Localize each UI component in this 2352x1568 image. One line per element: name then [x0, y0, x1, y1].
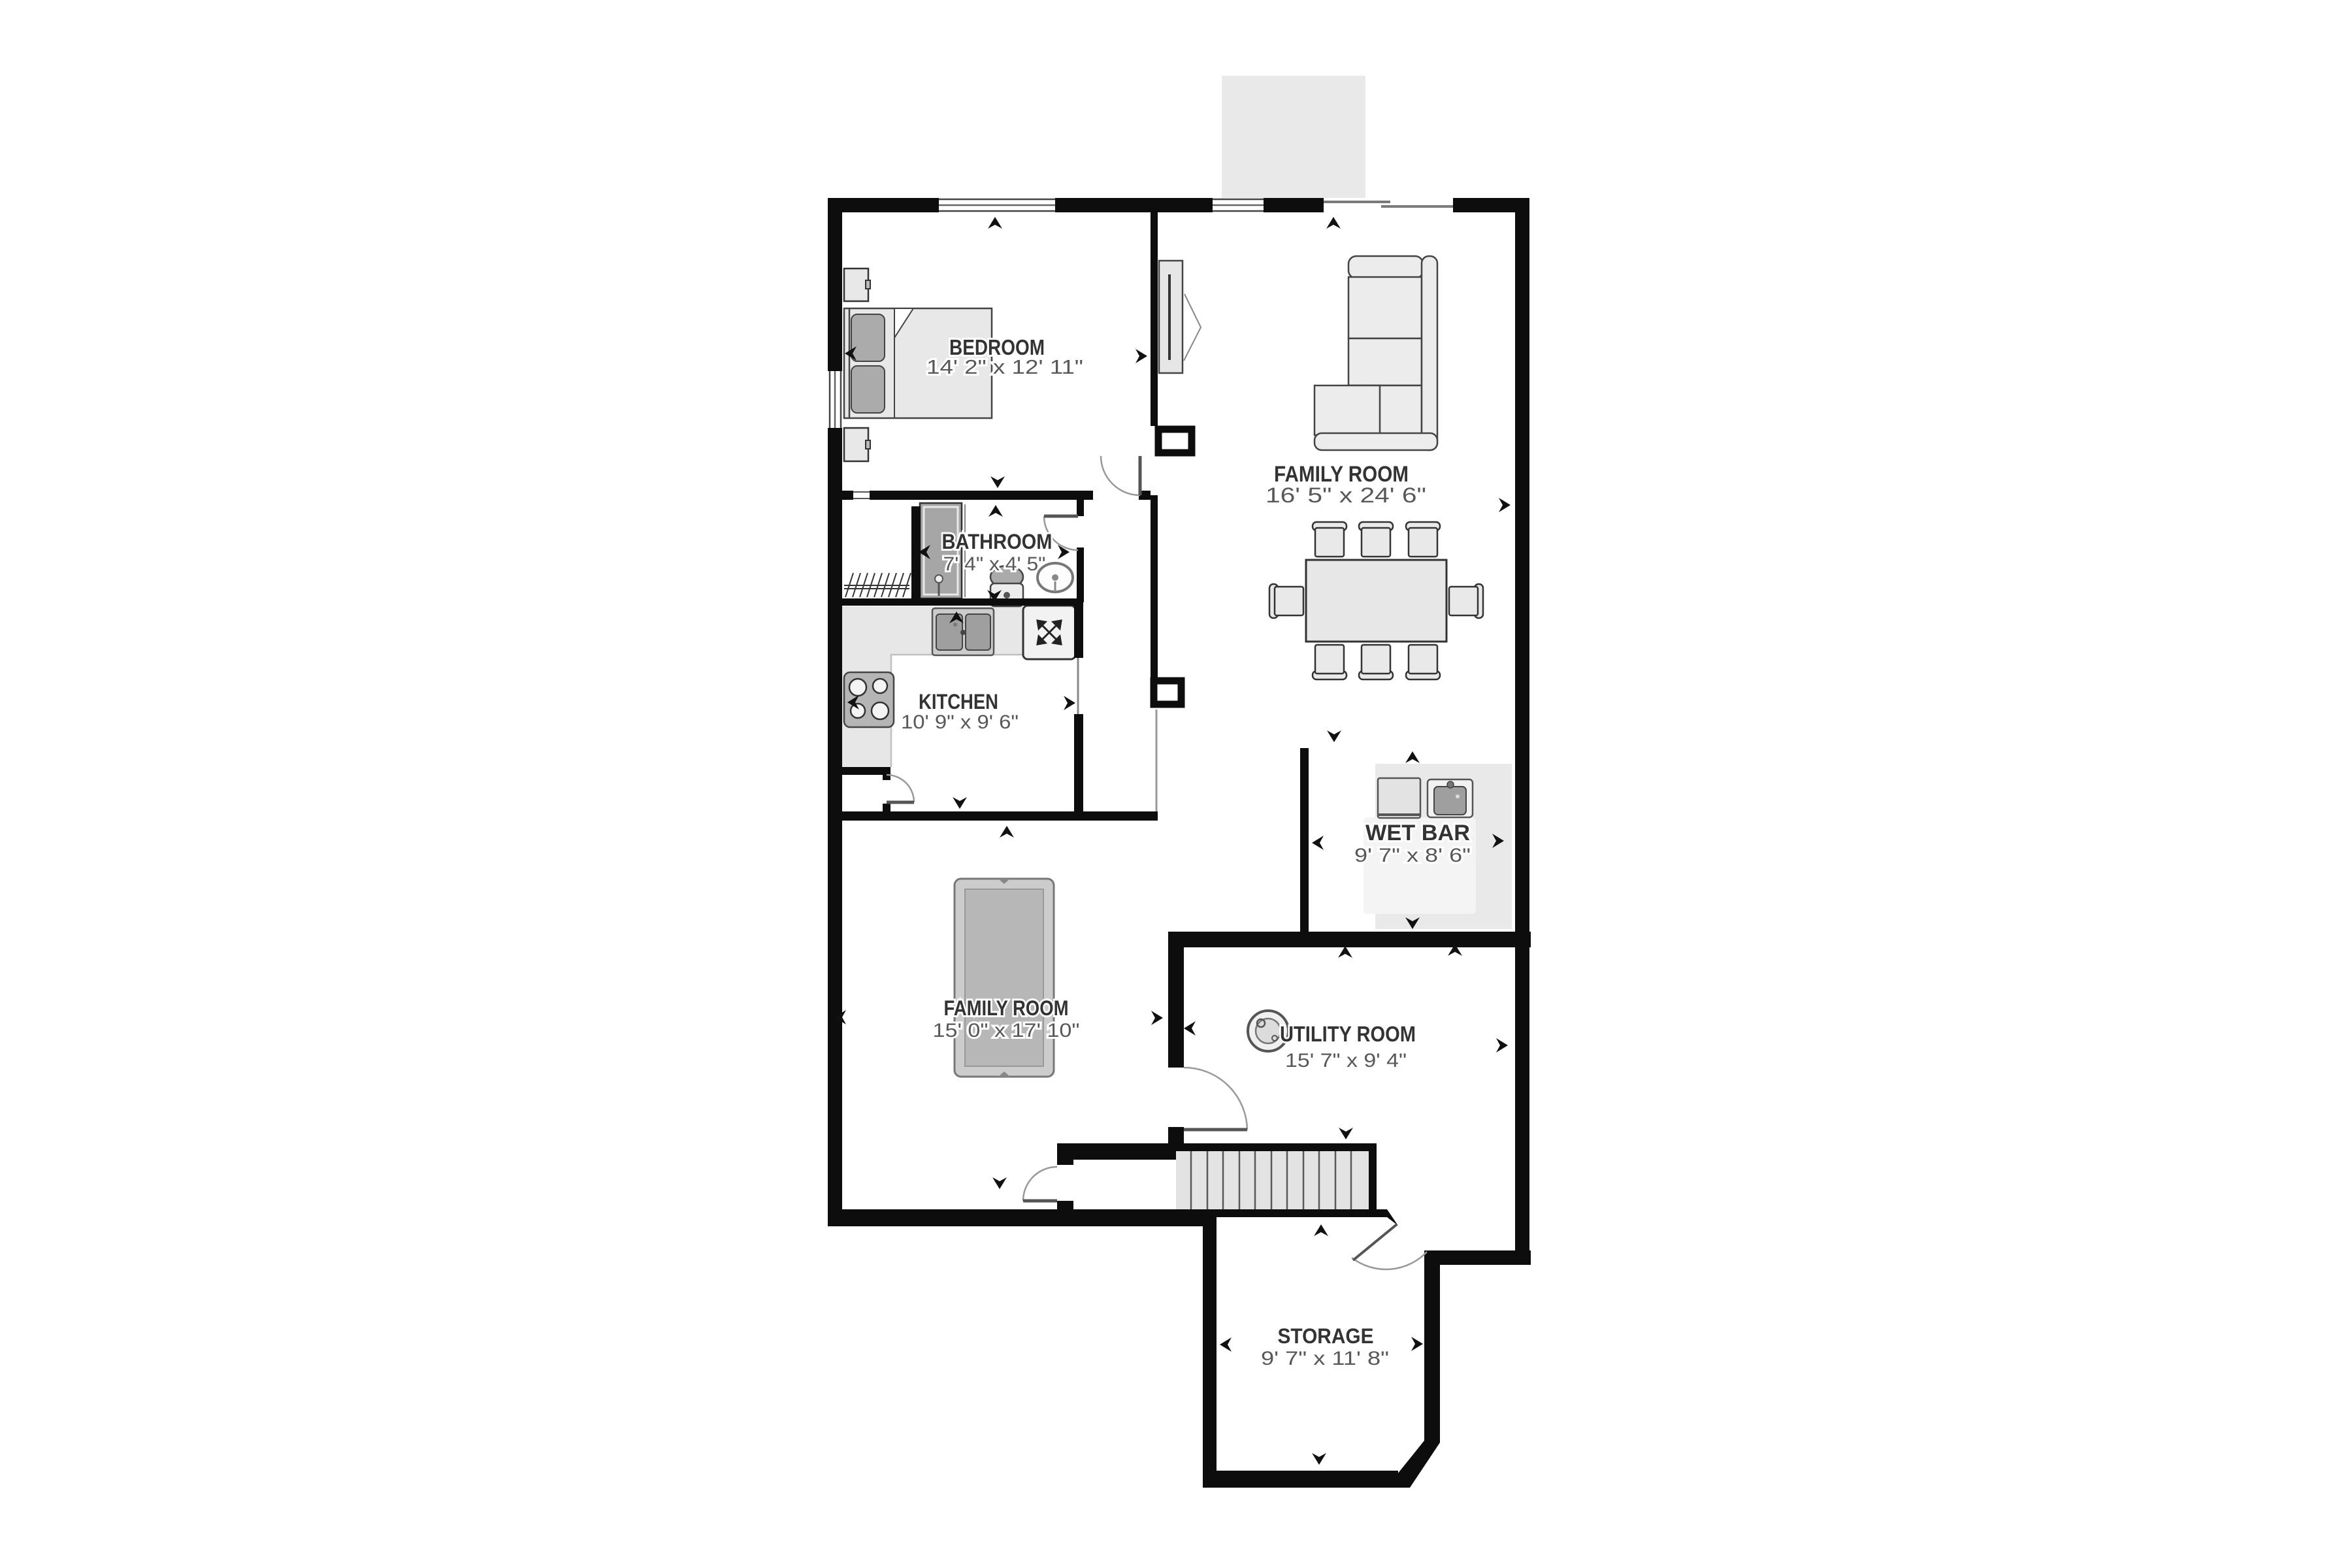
svg-text:16' 5" x 24' 6": 16' 5" x 24' 6": [1266, 483, 1426, 507]
svg-text:UTILITY ROOM: UTILITY ROOM: [1280, 1022, 1416, 1046]
svg-text:9' 7" x 8' 6": 9' 7" x 8' 6": [1354, 845, 1471, 866]
svg-text:7' 4" x 4' 5": 7' 4" x 4' 5": [943, 553, 1046, 575]
svg-text:14' 2" x 12' 11": 14' 2" x 12' 11": [926, 355, 1083, 378]
svg-text:STORAGE: STORAGE: [1278, 1324, 1374, 1348]
svg-text:15' 0" x 17' 10": 15' 0" x 17' 10": [933, 1020, 1080, 1041]
svg-text:9' 7" x 11' 8": 9' 7" x 11' 8": [1261, 1348, 1389, 1369]
svg-text:FAMILY ROOM: FAMILY ROOM: [944, 996, 1069, 1020]
svg-text:KITCHEN: KITCHEN: [919, 690, 998, 713]
svg-text:WET BAR: WET BAR: [1365, 821, 1470, 845]
svg-text:BATHROOM: BATHROOM: [942, 530, 1053, 553]
svg-text:10' 9" x 9' 6": 10' 9" x 9' 6": [901, 711, 1019, 733]
svg-text:15' 7" x 9' 4": 15' 7" x 9' 4": [1285, 1050, 1407, 1071]
